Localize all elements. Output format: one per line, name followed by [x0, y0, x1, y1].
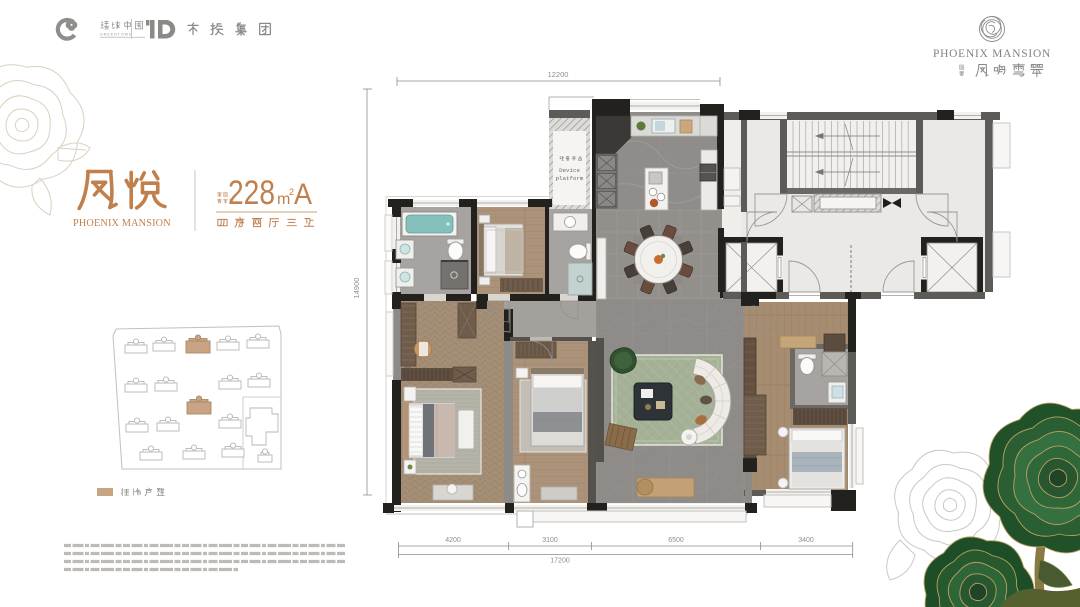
svg-text:14900: 14900 — [352, 278, 361, 299]
svg-text:Device: Device — [559, 167, 580, 174]
svg-text:6500: 6500 — [668, 537, 684, 544]
svg-text:12200: 12200 — [548, 70, 569, 79]
svg-text:228: 228 — [228, 174, 275, 212]
svg-text:3100: 3100 — [542, 537, 558, 544]
svg-text:A: A — [294, 178, 312, 211]
svg-text:3400: 3400 — [798, 537, 814, 544]
svg-text:17200: 17200 — [550, 558, 570, 565]
svg-text:G R E E N T O W N: G R E E N T O W N — [100, 32, 132, 36]
svg-text:PHOENIX MANSION: PHOENIX MANSION — [73, 218, 171, 229]
svg-text:4200: 4200 — [445, 537, 461, 544]
svg-text:platform: platform — [556, 175, 584, 182]
svg-text:PHOENIX MANSION: PHOENIX MANSION — [933, 48, 1051, 60]
